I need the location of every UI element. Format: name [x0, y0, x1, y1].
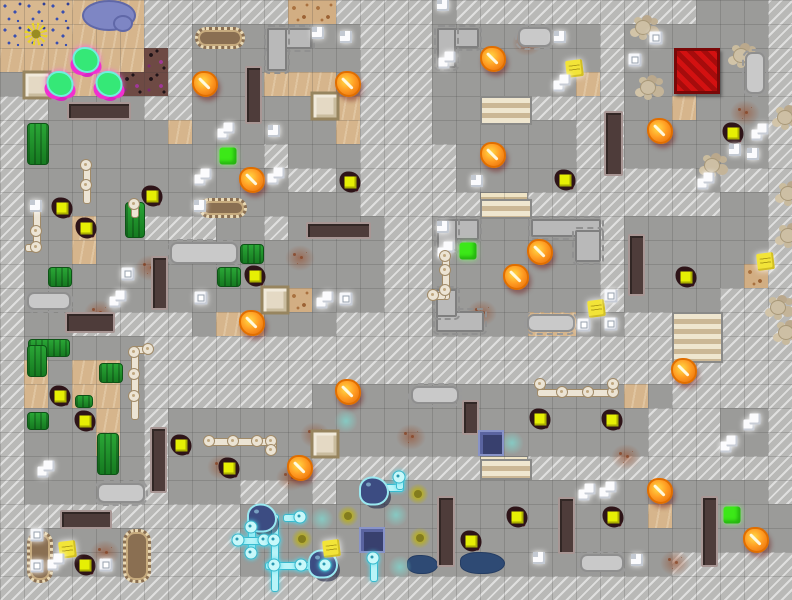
paper-stack-item[interactable]: [439, 52, 456, 69]
paper-stack-item[interactable]: [218, 123, 235, 140]
fire-sprite[interactable]: [671, 358, 697, 384]
light-glow: [384, 503, 408, 527]
bone-pipe-joint: [80, 159, 92, 171]
yellow-note-item[interactable]: [322, 539, 341, 558]
table-furniture[interactable]: [527, 314, 575, 332]
box-item[interactable]: [122, 268, 135, 281]
gravel-tile[interactable]: [120, 72, 168, 96]
log-bench[interactable]: [123, 529, 151, 583]
counter-furniture[interactable]: [267, 28, 287, 71]
door-bench[interactable]: [628, 234, 645, 296]
power-pipe-joint: [245, 547, 258, 560]
floor-tile[interactable]: [624, 216, 768, 240]
paper-item[interactable]: [30, 200, 42, 212]
supply-crate[interactable]: [261, 286, 290, 315]
bone-pipe-joint: [251, 435, 263, 447]
floor-tile[interactable]: [264, 312, 336, 336]
crop-planter[interactable]: [240, 244, 264, 264]
blue-crate[interactable]: [478, 430, 504, 456]
floor-tile[interactable]: [432, 96, 480, 120]
medkit-item[interactable]: [460, 243, 477, 260]
crop-planter[interactable]: [99, 363, 123, 383]
paper-item[interactable]: [631, 554, 643, 566]
door-bench[interactable]: [306, 222, 371, 239]
crop-planter[interactable]: [217, 267, 241, 287]
fire-sprite[interactable]: [647, 478, 673, 504]
water-puddle: [460, 552, 505, 574]
rubble-pile: [640, 80, 656, 95]
bone-pipe-joint: [534, 378, 546, 390]
sand-tile[interactable]: [672, 96, 696, 120]
paper-item[interactable]: [747, 148, 759, 160]
acid-splat: [291, 528, 313, 550]
crop-planter[interactable]: [27, 123, 49, 165]
power-pipe-joint: [319, 559, 332, 572]
table-furniture[interactable]: [745, 52, 765, 94]
zombie-sprite[interactable]: [75, 411, 96, 432]
fire-sprite[interactable]: [480, 142, 506, 168]
door-bench[interactable]: [558, 497, 575, 554]
sand-tile[interactable]: [168, 120, 192, 144]
power-pipe-joint: [232, 534, 245, 547]
door-bench[interactable]: [60, 510, 112, 529]
box-item[interactable]: [650, 32, 663, 45]
box-item[interactable]: [100, 559, 113, 572]
green-slime-sprite[interactable]: [73, 47, 100, 73]
floor-tile[interactable]: [24, 264, 384, 288]
floor-tile[interactable]: [624, 240, 768, 264]
paper-stack-item[interactable]: [38, 461, 55, 478]
zombie-sprite[interactable]: [723, 123, 744, 144]
medkit-item[interactable]: [724, 507, 741, 524]
paper-stack-item[interactable]: [195, 169, 212, 186]
fire-sprite[interactable]: [335, 71, 361, 97]
fire-sprite[interactable]: [743, 527, 769, 553]
bone-pipe-joint: [427, 289, 439, 301]
zombie-sprite[interactable]: [142, 186, 163, 207]
bone-pipe-joint: [439, 264, 451, 276]
crop-planter[interactable]: [27, 412, 49, 430]
power-pipe-joint: [245, 521, 258, 534]
zombie-sprite[interactable]: [555, 170, 576, 191]
sand-tile[interactable]: [648, 504, 672, 528]
paper-item[interactable]: [312, 27, 324, 39]
acid-splat: [409, 527, 431, 549]
paper-stack-item[interactable]: [600, 482, 617, 499]
paper-stack-item[interactable]: [317, 292, 334, 309]
crop-planter[interactable]: [48, 267, 72, 287]
box-item[interactable]: [195, 292, 208, 305]
sand-berry-tile[interactable]: [0, 0, 72, 24]
box-item[interactable]: [31, 560, 44, 573]
zombie-sprite[interactable]: [603, 507, 624, 528]
rust-decal: [396, 424, 426, 450]
bone-pipe-joint: [556, 386, 568, 398]
door-bench[interactable]: [437, 496, 455, 567]
box-item[interactable]: [578, 319, 591, 332]
light-glow: [388, 555, 412, 579]
green-slime-sprite[interactable]: [96, 71, 123, 97]
sand-debris-tile[interactable]: [288, 288, 312, 312]
box-item[interactable]: [340, 293, 353, 306]
box-item[interactable]: [629, 54, 642, 67]
floor-tile[interactable]: [192, 120, 336, 144]
box-item[interactable]: [605, 318, 618, 331]
rubble-pile: [778, 325, 792, 340]
paper-item[interactable]: [194, 200, 206, 212]
bone-pipe-joint: [128, 198, 140, 210]
bone-pipe-joint: [265, 444, 277, 456]
sand-tile[interactable]: [24, 384, 48, 408]
rubble-pile: [770, 300, 786, 315]
rubble-pile: [777, 110, 792, 125]
table-furniture[interactable]: [97, 483, 145, 503]
crop-planter[interactable]: [97, 433, 119, 475]
zombie-sprite[interactable]: [245, 266, 266, 287]
floor-tile[interactable]: [432, 288, 600, 312]
floor-tile[interactable]: [696, 0, 768, 24]
medkit-item[interactable]: [220, 148, 237, 165]
floor-tile[interactable]: [24, 432, 96, 456]
staircase[interactable]: [480, 96, 532, 125]
blue-crate[interactable]: [359, 527, 385, 553]
floor-tile[interactable]: [720, 192, 768, 216]
zombie-sprite[interactable]: [171, 435, 192, 456]
crop-planter[interactable]: [27, 345, 47, 377]
power-pipe-joint: [268, 534, 281, 547]
fire-sprite[interactable]: [287, 455, 313, 481]
floor-tile[interactable]: [192, 312, 216, 336]
zombie-sprite[interactable]: [602, 410, 623, 431]
paper-item[interactable]: [471, 175, 483, 187]
bone-pipe-joint: [128, 368, 140, 380]
paper-item[interactable]: [268, 125, 280, 137]
table-furniture[interactable]: [518, 27, 552, 47]
paper-stack-item[interactable]: [48, 554, 65, 571]
floor-tile[interactable]: [120, 432, 144, 456]
acid-splat: [407, 483, 429, 505]
door-bench[interactable]: [462, 400, 479, 435]
power-pipe-joint: [367, 552, 380, 565]
yellow-note-item[interactable]: [756, 252, 775, 271]
paper-stack-item[interactable]: [721, 436, 738, 453]
bone-pipe-joint: [582, 386, 594, 398]
paper-stack-item[interactable]: [268, 168, 285, 185]
crop-planter[interactable]: [75, 395, 93, 408]
door-bench[interactable]: [65, 312, 115, 333]
supply-crate[interactable]: [311, 92, 340, 121]
bone-pipe-joint: [439, 250, 451, 262]
paper-item[interactable]: [437, 221, 449, 233]
floor-tile[interactable]: [456, 144, 576, 168]
zombie-sprite[interactable]: [676, 267, 697, 288]
door-bench[interactable]: [150, 427, 167, 493]
bone-pipe-joint: [439, 284, 451, 296]
sand-tile[interactable]: [72, 240, 96, 264]
table-furniture[interactable]: [27, 292, 71, 310]
paper-stack-item[interactable]: [752, 124, 769, 141]
rubble-pile: [780, 186, 792, 201]
light-glow: [310, 507, 334, 531]
sand-tile[interactable]: [624, 384, 648, 408]
log-bench[interactable]: [195, 27, 245, 49]
rubble-pile: [780, 228, 792, 243]
bone-pipe-joint: [142, 343, 154, 355]
table-furniture[interactable]: [170, 242, 238, 264]
floor-tile[interactable]: [624, 96, 672, 120]
zombie-sprite[interactable]: [75, 555, 96, 576]
fire-sprite[interactable]: [527, 239, 553, 265]
floor-tile[interactable]: [288, 144, 360, 168]
fire-sprite[interactable]: [480, 46, 506, 72]
door-bench[interactable]: [245, 66, 262, 124]
sand-debris-tile[interactable]: [288, 0, 336, 24]
floor-tile[interactable]: [24, 192, 360, 216]
fire-sprite[interactable]: [335, 379, 361, 405]
paper-stack-item[interactable]: [698, 173, 715, 190]
door-bench[interactable]: [151, 256, 168, 310]
bone-pipe-joint: [30, 241, 42, 253]
blue-slime-sprite[interactable]: [359, 477, 389, 506]
paper-item[interactable]: [729, 144, 741, 156]
box-item[interactable]: [31, 529, 44, 542]
zombie-sprite[interactable]: [76, 218, 97, 239]
green-slime-sprite[interactable]: [47, 71, 74, 97]
bone-pipe-joint: [128, 390, 140, 402]
fire-sprite[interactable]: [239, 310, 265, 336]
zombie-sprite[interactable]: [219, 458, 240, 479]
supply-crate[interactable]: [311, 430, 340, 459]
paper-item[interactable]: [533, 552, 545, 564]
paper-item[interactable]: [437, 0, 449, 11]
red-alert-mat[interactable]: [674, 48, 720, 94]
bone-pipe-joint: [128, 346, 140, 358]
door-bench[interactable]: [604, 111, 623, 176]
zombie-sprite[interactable]: [507, 507, 528, 528]
bone-pipe: [537, 389, 617, 397]
fire-sprite[interactable]: [192, 71, 218, 97]
bone-pipe-joint: [227, 435, 239, 447]
power-pipe-joint: [295, 559, 308, 572]
power-pipe-joint: [268, 559, 281, 572]
game-map[interactable]: [0, 0, 792, 600]
power-pipe-joint: [393, 471, 406, 484]
acid-splat: [337, 505, 359, 527]
sand-tile[interactable]: [96, 408, 120, 432]
zombie-sprite[interactable]: [50, 386, 71, 407]
fire-sprite[interactable]: [503, 264, 529, 290]
pond-water: [113, 15, 133, 32]
rust-decal: [285, 245, 315, 271]
staircase[interactable]: [672, 312, 723, 363]
zombie-sprite[interactable]: [340, 172, 361, 193]
yellow-note-item[interactable]: [587, 299, 606, 318]
rust-decal: [611, 444, 641, 470]
bone-pipe-joint: [30, 225, 42, 237]
bone-pipe-joint: [203, 435, 215, 447]
fire-sprite[interactable]: [647, 118, 673, 144]
paper-stack-item[interactable]: [579, 484, 596, 501]
paper-stack-item[interactable]: [110, 291, 127, 308]
table-furniture[interactable]: [580, 554, 624, 572]
floor-tile[interactable]: [216, 216, 264, 240]
paper-stack-item[interactable]: [744, 414, 761, 431]
floor-tile[interactable]: [168, 480, 240, 504]
flower-decor: [25, 23, 48, 46]
table-furniture[interactable]: [411, 386, 459, 404]
zombie-sprite[interactable]: [530, 409, 551, 430]
rust-decal: [660, 550, 690, 576]
sand-tile[interactable]: [336, 120, 360, 144]
power-pipe-joint: [294, 511, 307, 524]
rubble-pile: [704, 158, 720, 173]
floor-tile[interactable]: [648, 384, 672, 408]
bone-pipe-joint: [607, 378, 619, 390]
paper-item[interactable]: [554, 31, 566, 43]
counter-furniture[interactable]: [575, 230, 601, 262]
paper-item[interactable]: [340, 31, 352, 43]
staircase[interactable]: [480, 459, 532, 480]
zombie-sprite[interactable]: [461, 531, 482, 552]
door-bench[interactable]: [701, 496, 718, 567]
log-bench[interactable]: [199, 198, 247, 218]
floor-tile[interactable]: [48, 360, 72, 384]
staircase[interactable]: [480, 199, 532, 219]
paper-stack-item[interactable]: [554, 75, 571, 92]
bone-pipe-joint: [80, 179, 92, 191]
door-bench[interactable]: [67, 102, 131, 120]
box-item[interactable]: [605, 290, 618, 303]
zombie-sprite[interactable]: [52, 198, 73, 219]
fire-sprite[interactable]: [239, 167, 265, 193]
gravel-tile[interactable]: [144, 48, 168, 72]
